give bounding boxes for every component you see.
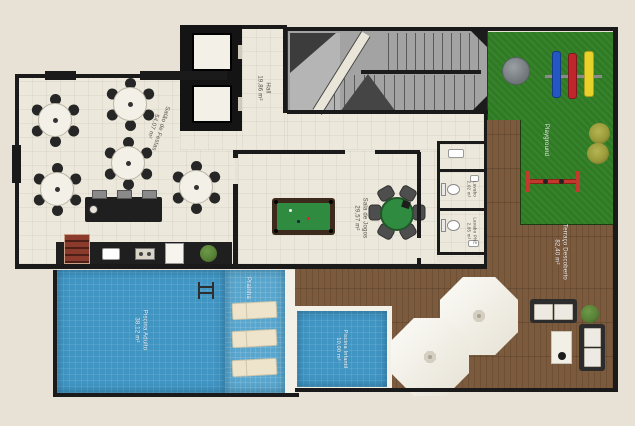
room-label-lavabo: Lavabo2,02 m² [466,181,477,198]
wall [283,27,618,31]
window-bar [140,71,227,80]
round-table [29,161,85,217]
umbrella-pole [428,355,432,359]
stool [142,190,157,199]
seesaw-handle [559,179,564,184]
stair-upper-flight [388,33,484,71]
wall [287,110,488,114]
toilet-tank [441,183,446,196]
elevator-lobby-floor [180,131,242,150]
buffet-table [85,197,162,222]
sun-lounger [232,358,278,377]
table-center [55,187,60,192]
elevator-cab-2 [192,85,232,123]
wall [242,25,287,29]
sun-lounger [232,301,278,320]
wall [437,141,440,255]
wall [417,258,421,264]
tray [558,352,566,360]
coffee-table [551,331,572,364]
table-center [194,185,199,190]
window-bar [45,71,76,80]
wall [53,393,299,397]
seesaw-bar [528,179,580,184]
counter-sink [102,248,120,260]
wall [484,113,487,264]
sandbox-circle [502,57,530,85]
patio-umbrella [391,318,469,396]
wall [15,264,487,269]
room-label-terraco: Terraço Descoberto82,40 m² [553,224,568,280]
billiard-felt [277,203,330,230]
wall [53,270,57,397]
elevator-door-1 [238,45,242,59]
stair-mid-rail [361,70,481,74]
toilet-tank [441,219,446,232]
seesaw-end [526,171,530,192]
billiard-table [272,198,335,235]
utility-sink [448,149,464,158]
elevator-door-2 [238,97,242,111]
swing-yellow [584,51,594,97]
stool [117,190,132,199]
platter [89,205,98,214]
room-label-prainha: Prainha [243,277,251,299]
round-table [27,92,83,148]
swing-blue [552,51,561,98]
wall [437,141,485,144]
deck-right [487,225,615,270]
floor-plan: Salão de Festas54,07 m² Hall19,86 m² Sal… [0,0,635,426]
wall [238,150,345,154]
pool-ladder [198,282,214,299]
chair [125,120,136,131]
room-label-playground: Playground [541,124,549,156]
wall [437,169,485,172]
wall [437,252,485,255]
stool [92,190,107,199]
swing-red [568,53,577,99]
wall [417,152,421,238]
plant [200,245,217,262]
toilet-bowl [447,220,460,231]
toilet-bowl [447,184,460,195]
wall [375,150,420,154]
outdoor-sofa [530,299,577,323]
seesaw-handle [543,179,548,184]
umbrella-pole [477,314,481,318]
fridge [165,243,184,264]
wall [437,208,485,211]
outdoor-loveseat [579,324,605,371]
room-label-lavabo-pne: Lavabo PNE2,85 m² [466,217,477,244]
round-table [168,159,224,215]
window-bar [12,145,21,183]
table-center [53,118,58,123]
chair [123,179,134,190]
seesaw-end [576,171,580,192]
wall [283,27,287,113]
room-label-hall: Hall19,86 m² [256,75,271,100]
wall [613,27,618,392]
chair [52,205,63,216]
wall [233,184,238,264]
room-label-sala-jogos: Sala de Jogos29,57 m² [353,198,368,239]
elevator-cab-1 [192,33,232,71]
cooktop [135,248,155,260]
sun-lounger [232,329,278,348]
shrub [589,123,610,144]
stairwell [287,30,488,113]
table-center [126,161,131,166]
room-label-piscina-infantil: Piscina Infantil10,00 m² [334,330,348,369]
terrace-plant [581,305,599,323]
barbecue-grill [64,234,90,264]
wall [295,388,617,392]
table-center [128,102,133,107]
chair [50,136,61,147]
shrub [587,143,609,164]
chair [191,203,202,214]
room-label-piscina-adulto: Piscina Adulto38,12 m² [133,310,148,351]
